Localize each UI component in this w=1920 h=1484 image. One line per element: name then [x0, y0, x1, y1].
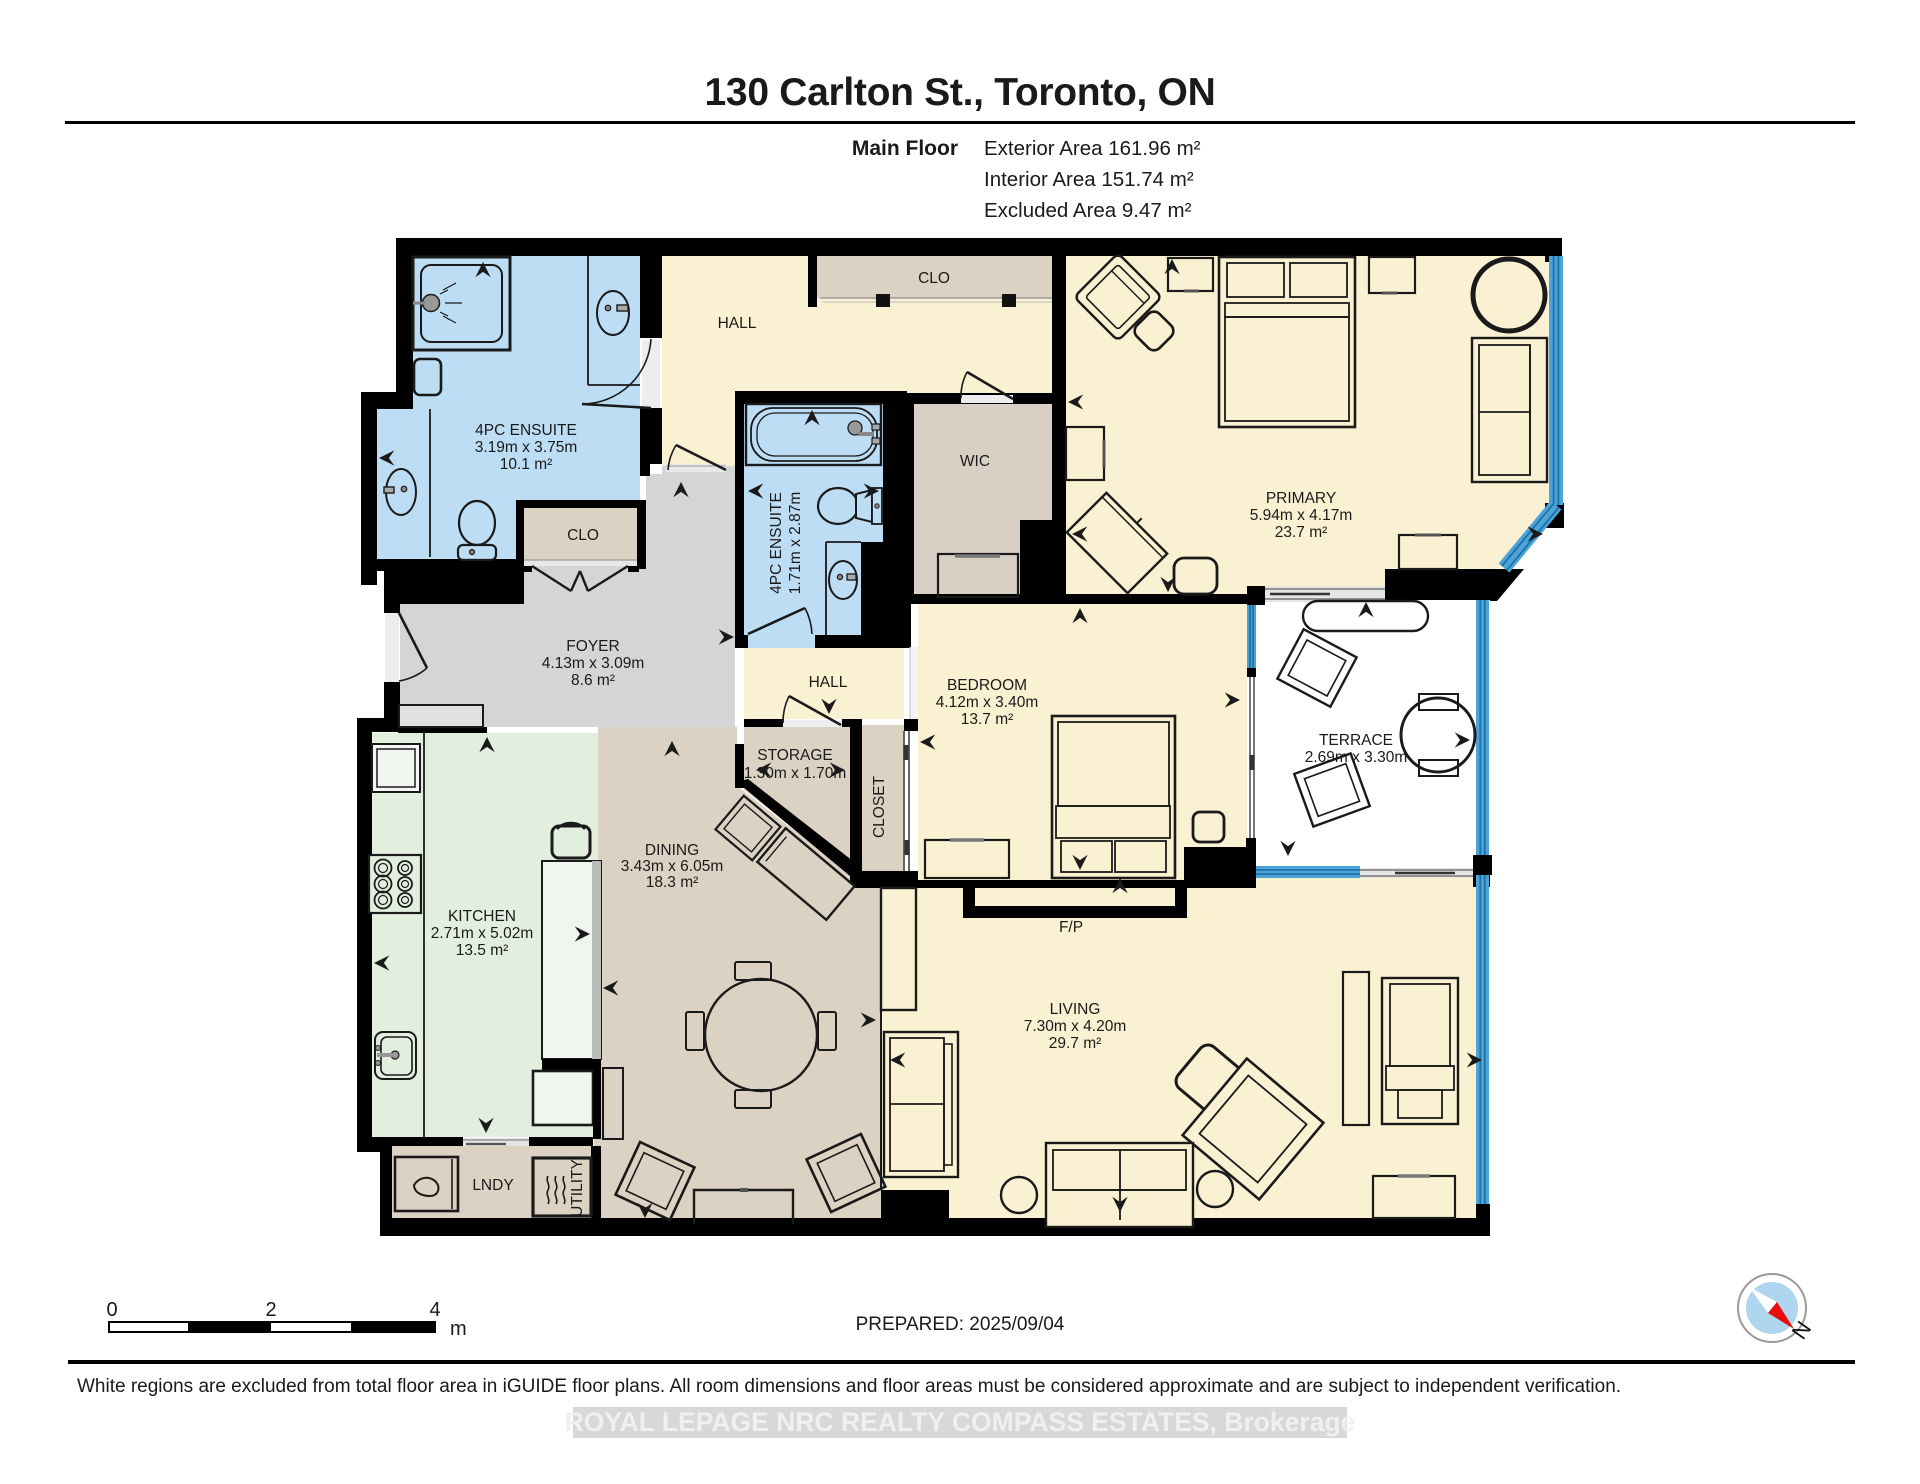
svg-text:UTILITY: UTILITY	[569, 1159, 586, 1217]
svg-text:29.7 m²: 29.7 m²	[1049, 1035, 1102, 1052]
svg-text:130 Carlton St., Toronto, ON: 130 Carlton St., Toronto, ON	[705, 71, 1216, 114]
svg-text:WIC: WIC	[960, 453, 990, 470]
svg-text:LNDY: LNDY	[472, 1177, 513, 1194]
svg-text:m: m	[450, 1318, 467, 1340]
svg-text:BEDROOM: BEDROOM	[947, 677, 1027, 694]
svg-text:1.71m x 2.87m: 1.71m x 2.87m	[787, 492, 804, 595]
svg-text:3.43m x 6.05m: 3.43m x 6.05m	[621, 858, 724, 875]
svg-text:FOYER: FOYER	[566, 638, 619, 655]
svg-text:HALL: HALL	[809, 674, 848, 691]
svg-text:TERRACE: TERRACE	[1319, 732, 1393, 749]
svg-text:STORAGE: STORAGE	[757, 747, 833, 764]
svg-text:23.7 m²: 23.7 m²	[1275, 524, 1328, 541]
svg-text:7.30m x 4.20m: 7.30m x 4.20m	[1024, 1018, 1127, 1035]
svg-text:2.71m x 5.02m: 2.71m x 5.02m	[431, 925, 534, 942]
svg-text:LIVING: LIVING	[1050, 1001, 1101, 1018]
svg-text:PREPARED: 2025/09/04: PREPARED: 2025/09/04	[856, 1314, 1065, 1335]
svg-text:4.13m x 3.09m: 4.13m x 3.09m	[542, 655, 645, 672]
svg-text:CLOSET: CLOSET	[871, 775, 888, 838]
svg-text:HALL: HALL	[718, 315, 757, 332]
svg-text:4PC ENSUITE: 4PC ENSUITE	[475, 422, 577, 439]
svg-text:10.1 m²: 10.1 m²	[500, 456, 553, 473]
svg-text:8.6 m²: 8.6 m²	[571, 672, 615, 689]
svg-text:Main Floor: Main Floor	[852, 137, 958, 160]
svg-text:4.12m x 3.40m: 4.12m x 3.40m	[936, 694, 1039, 711]
svg-text:4PC ENSUITE: 4PC ENSUITE	[768, 492, 785, 594]
svg-text:0: 0	[106, 1299, 117, 1321]
svg-text:13.7 m²: 13.7 m²	[961, 711, 1014, 728]
svg-text:PRIMARY: PRIMARY	[1266, 490, 1336, 507]
svg-text:ROYAL LEPAGE NRC REALTY COMPAS: ROYAL LEPAGE NRC REALTY COMPASS ESTATES,…	[565, 1407, 1356, 1437]
svg-text:CLO: CLO	[567, 527, 599, 544]
svg-text:3.19m x 3.75m: 3.19m x 3.75m	[475, 439, 578, 456]
svg-text:CLO: CLO	[918, 270, 950, 287]
svg-text:Excluded Area 9.47 m²: Excluded Area 9.47 m²	[984, 199, 1192, 222]
svg-text:F/P: F/P	[1059, 919, 1083, 936]
svg-text:Exterior Area 161.96 m²: Exterior Area 161.96 m²	[984, 137, 1201, 160]
svg-text:1.30m x 1.70m: 1.30m x 1.70m	[744, 765, 847, 782]
svg-text:DINING: DINING	[645, 842, 699, 859]
svg-text:Interior Area 151.74 m²: Interior Area 151.74 m²	[984, 168, 1194, 191]
svg-text:4: 4	[429, 1299, 440, 1321]
svg-text:KITCHEN: KITCHEN	[448, 908, 516, 925]
svg-text:2: 2	[265, 1299, 276, 1321]
svg-text:18.3 m²: 18.3 m²	[646, 874, 699, 891]
svg-text:13.5 m²: 13.5 m²	[456, 942, 509, 959]
svg-text:5.94m x 4.17m: 5.94m x 4.17m	[1250, 507, 1353, 524]
svg-text:White regions are excluded fro: White regions are excluded from total fl…	[77, 1376, 1621, 1397]
svg-text:2.69m x 3.30m: 2.69m x 3.30m	[1305, 749, 1408, 766]
